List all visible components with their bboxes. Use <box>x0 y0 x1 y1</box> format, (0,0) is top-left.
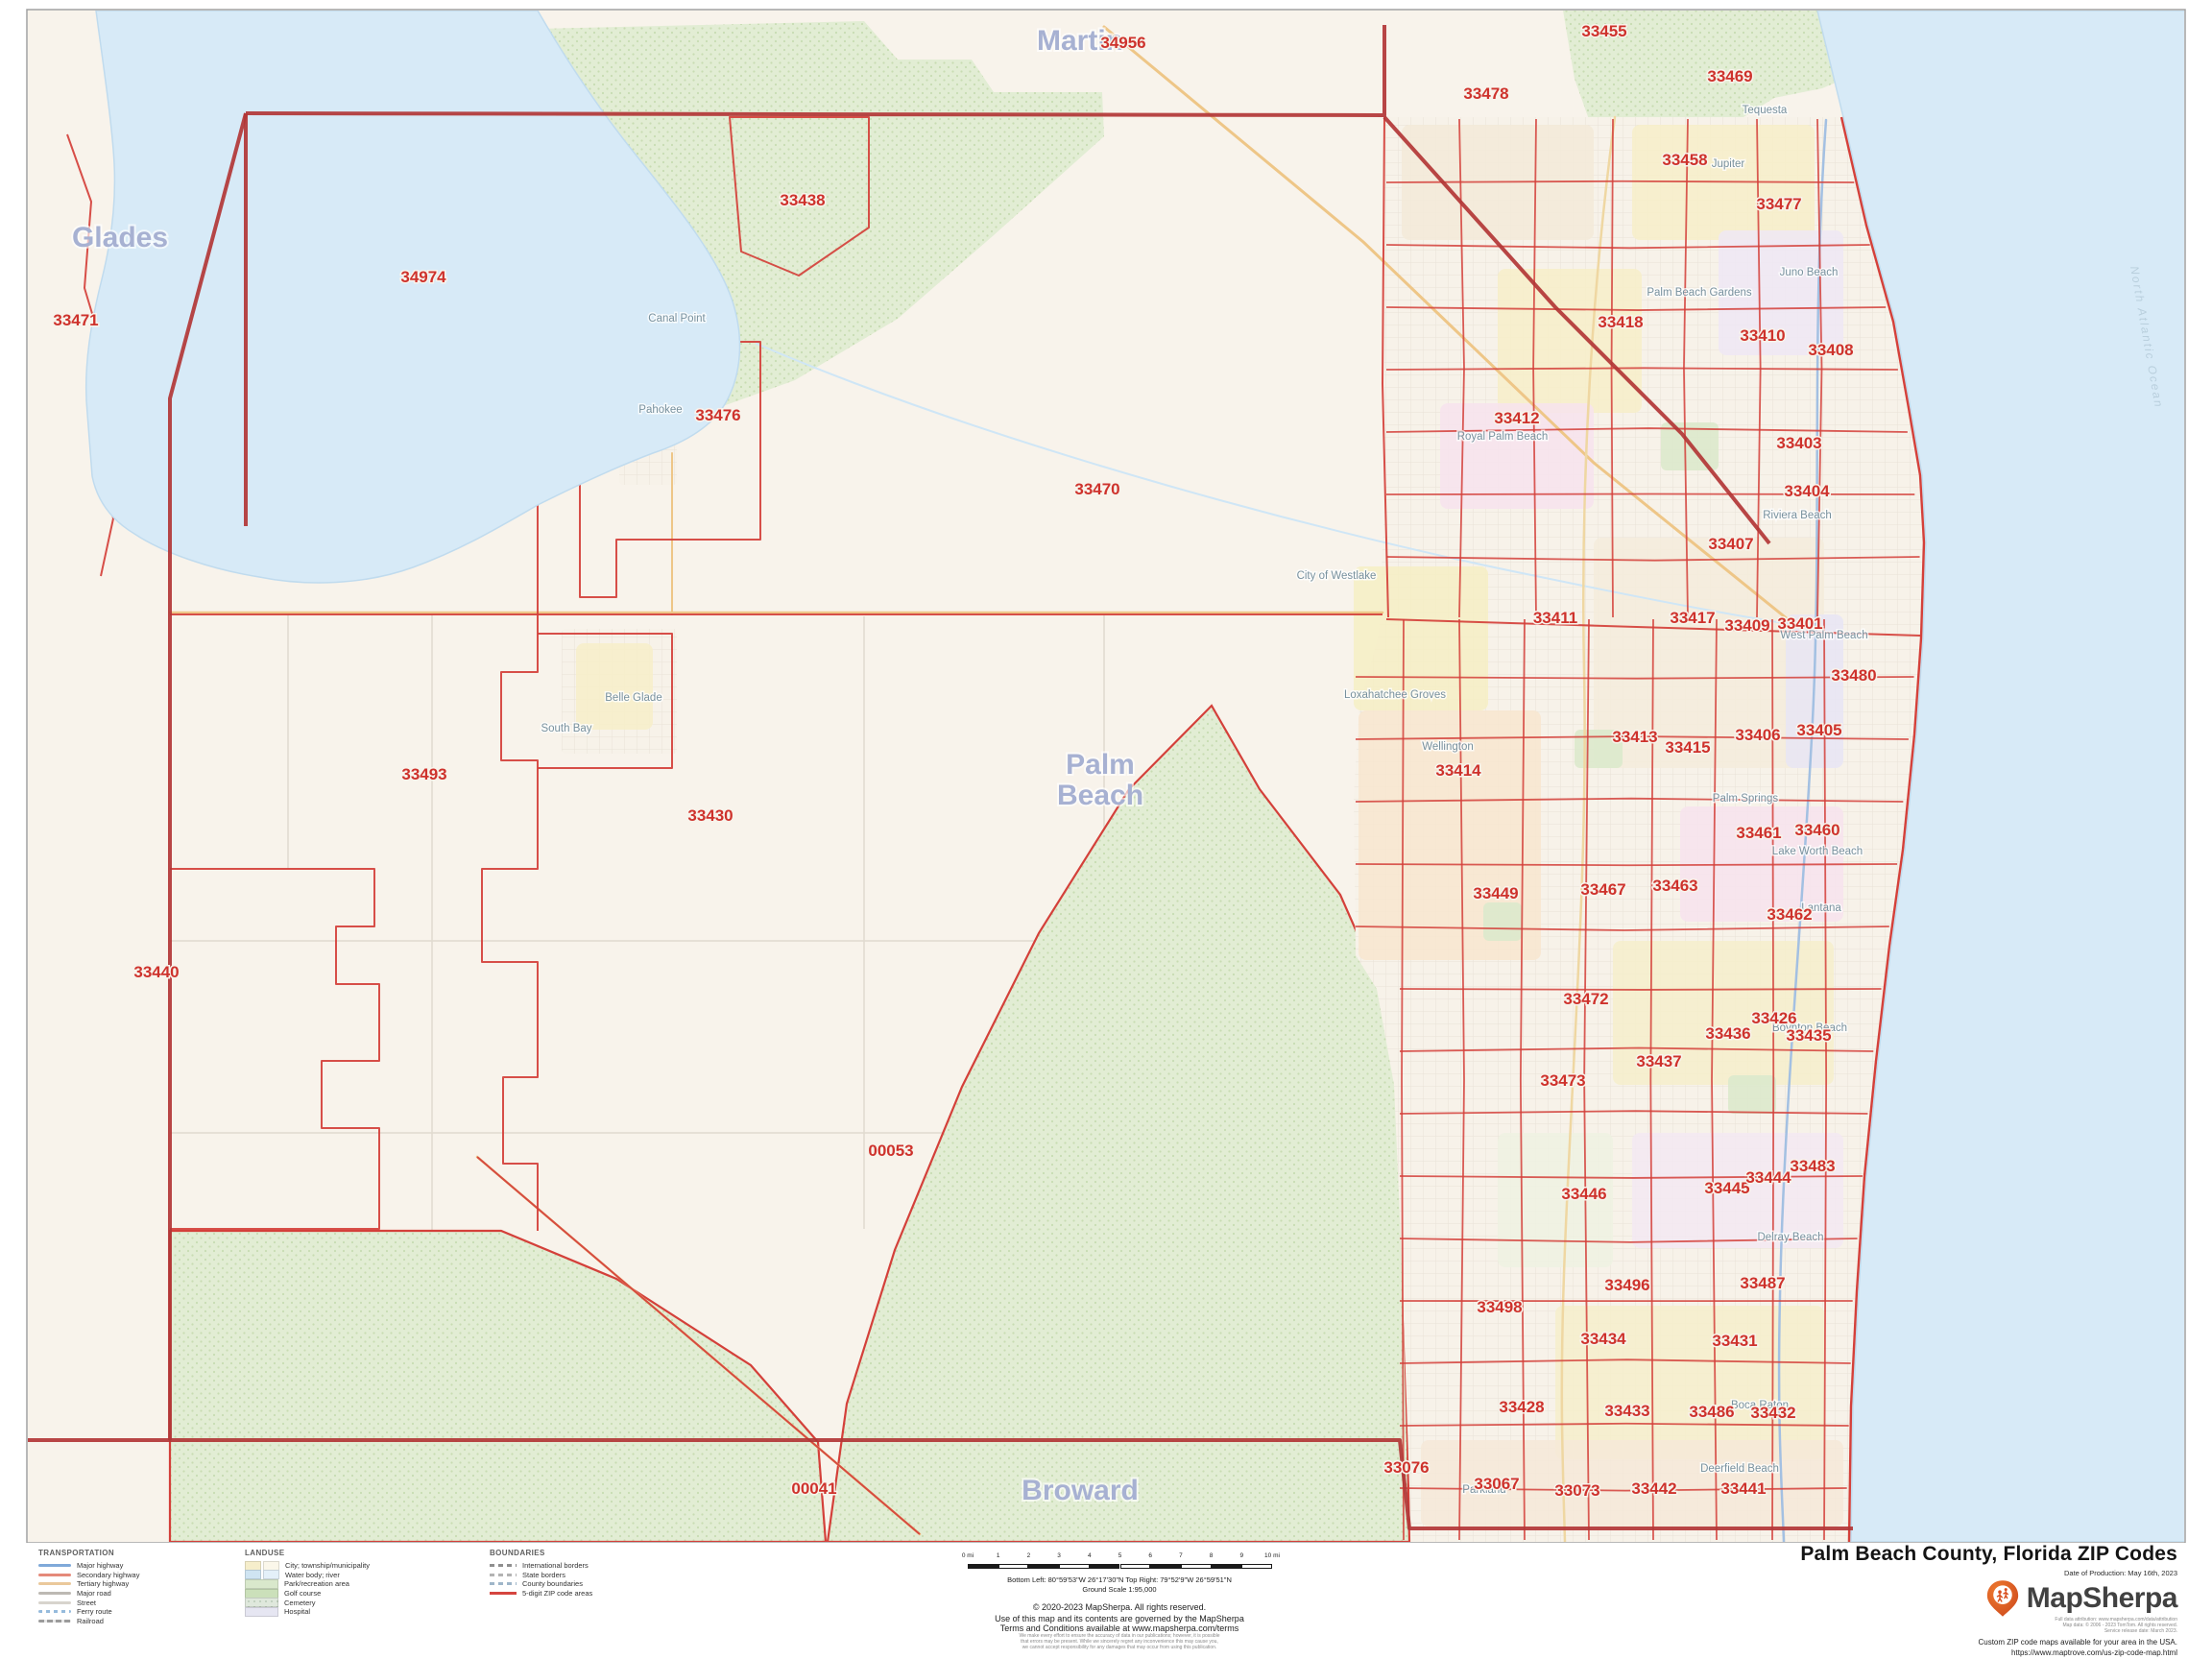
scale-bar-tick: 5 <box>1108 1552 1133 1559</box>
legend-item: Major highway <box>38 1561 139 1571</box>
legend-item-label: Railroad <box>77 1617 104 1625</box>
legend-swatch <box>245 1570 279 1579</box>
zip-label: 33406 <box>1735 726 1780 744</box>
zip-label: 33496 <box>1604 1276 1649 1294</box>
county-label: Beach <box>1057 780 1143 811</box>
legend-section: LANDUSECity; township/municipalityWater … <box>245 1549 370 1617</box>
landuse-patch <box>1555 1306 1824 1459</box>
legend-item-label: State borders <box>522 1571 565 1579</box>
zip-label: 33433 <box>1604 1402 1649 1420</box>
legend-item-label: City; township/municipality <box>285 1561 370 1570</box>
zip-label: 33469 <box>1707 67 1752 85</box>
scale-bar-tick: 10 mi <box>1260 1552 1285 1559</box>
zip-label: 33462 <box>1767 905 1812 924</box>
legend-item-label: Cemetery <box>284 1599 316 1607</box>
legend-swatch <box>38 1592 71 1595</box>
zip-label: 33073 <box>1554 1481 1599 1500</box>
zip-label: 33441 <box>1720 1479 1766 1498</box>
zip-label: 33409 <box>1724 616 1769 635</box>
zip-label: 33437 <box>1636 1052 1681 1070</box>
zip-label: 33493 <box>401 765 446 783</box>
scale-bar-segment <box>1120 1564 1151 1569</box>
legend-swatch <box>490 1582 517 1585</box>
legend-item: Park/recreation area <box>245 1579 370 1589</box>
zip-label: 33483 <box>1790 1157 1835 1175</box>
zip-label: 33403 <box>1776 434 1821 452</box>
legend-item: Secondary highway <box>38 1571 139 1580</box>
scale-bar-segment <box>1241 1564 1272 1569</box>
zip-label: 33415 <box>1665 738 1710 757</box>
legend-item-label: Hospital <box>284 1607 310 1616</box>
legend-item: Hospital <box>245 1607 370 1617</box>
zip-label: 33476 <box>695 406 740 424</box>
legend-item: Water body; river <box>245 1571 370 1580</box>
legend-swatch <box>490 1592 517 1595</box>
zip-label: 33418 <box>1598 313 1643 331</box>
zip-label: 33440 <box>133 963 179 981</box>
zip-boundary <box>1400 989 1882 990</box>
legend-item: Ferry route <box>38 1607 139 1617</box>
footer: TRANSPORTATIONMajor highwaySecondary hig… <box>0 1543 2212 1659</box>
zip-label: 33417 <box>1670 609 1715 627</box>
map-title: Palm Beach County, Florida ZIP Codes <box>1800 1543 2177 1566</box>
legend-item-label: Major road <box>77 1589 111 1598</box>
zip-label: 33431 <box>1712 1332 1757 1350</box>
zip-label: 33432 <box>1750 1404 1795 1422</box>
legend-swatch <box>245 1607 278 1617</box>
scale-bar-tick: 2 <box>1016 1552 1041 1559</box>
legend-swatch <box>245 1561 279 1571</box>
legend-item-label: Major highway <box>77 1561 123 1570</box>
scale-bar-tick: 1 <box>986 1552 1011 1559</box>
zip-label: 33472 <box>1563 990 1608 1008</box>
scale-bar-segment <box>968 1564 998 1569</box>
zip-label: 33460 <box>1794 821 1839 839</box>
scale-bar-segment <box>1059 1564 1090 1569</box>
city-label: Pahokee <box>638 404 682 416</box>
zip-label: 33487 <box>1740 1274 1785 1292</box>
legend-section-title: TRANSPORTATION <box>38 1549 139 1557</box>
legend-item: Cemetery <box>245 1598 370 1607</box>
legend-swatch <box>245 1579 278 1589</box>
zip-label: 33414 <box>1435 761 1481 780</box>
scale-bar-tick: 7 <box>1168 1552 1193 1559</box>
zip-label: 33444 <box>1745 1168 1791 1187</box>
title-block: Palm Beach County, Florida ZIP Codes Dat… <box>1800 1543 2177 1657</box>
map-extent-coordinates: Bottom Left: 80°59'53"W 26°17'30"N Top R… <box>1007 1575 1232 1584</box>
zip-label: 33461 <box>1736 824 1781 842</box>
scale-bar-tick: 8 <box>1199 1552 1224 1559</box>
zip-label: 33477 <box>1756 195 1801 213</box>
city-label: Lake Worth Beach <box>1772 846 1863 857</box>
city-label: Delray Beach <box>1757 1232 1823 1243</box>
legend-item-label: Street <box>77 1599 96 1607</box>
scale-bar-segment <box>1212 1564 1242 1569</box>
legend-swatch <box>490 1574 517 1576</box>
landuse-patch <box>576 643 653 730</box>
zip-label: 33076 <box>1383 1458 1429 1477</box>
zip-label: 33428 <box>1499 1398 1544 1416</box>
zip-label: 33467 <box>1580 880 1625 899</box>
page: { "map": { "colors": { "base": "#f8f3eb"… <box>0 0 2212 1659</box>
zip-label: 33067 <box>1474 1475 1519 1493</box>
zip-code-map: North Atlantic OceanGladesMartinPalmBeac… <box>0 0 2212 1543</box>
legend-section: TRANSPORTATIONMajor highwaySecondary hig… <box>38 1549 139 1625</box>
legend-item: Street <box>38 1598 139 1607</box>
scale-bar-tick: 6 <box>1138 1552 1163 1559</box>
zip-label: 00053 <box>868 1142 913 1160</box>
zip-label: 33430 <box>687 806 733 825</box>
legend-swatch <box>490 1564 517 1567</box>
legend-item: Golf course <box>245 1589 370 1599</box>
zip-label: 33401 <box>1777 614 1822 633</box>
park-patch <box>1728 1075 1776 1114</box>
scale-bar-segment <box>1090 1564 1120 1569</box>
zip-label: 33458 <box>1662 151 1707 169</box>
scale-bar-tick: 3 <box>1046 1552 1071 1559</box>
zip-label: 33413 <box>1612 728 1657 746</box>
zip-label: 33408 <box>1808 341 1853 359</box>
city-label: Loxahatchee Groves <box>1344 689 1446 701</box>
legend-item-label: Golf course <box>284 1589 321 1598</box>
brand-name: MapSherpa <box>2027 1582 2177 1615</box>
legend-swatch <box>38 1574 71 1576</box>
zip-label: 00041 <box>791 1479 836 1498</box>
custom-maps-note: Custom ZIP code maps available for your … <box>1800 1638 2177 1647</box>
legend-section: BOUNDARIESInternational bordersState bor… <box>490 1549 592 1598</box>
legend-item-label: Ferry route <box>77 1607 112 1616</box>
data-attribution-3: Service release date: March 2023. <box>1800 1629 2177 1635</box>
legend-item: 5-digit ZIP code areas <box>490 1589 592 1599</box>
legend-section-title: BOUNDARIES <box>490 1549 592 1557</box>
zip-label: 33405 <box>1796 721 1841 739</box>
zip-label: 33445 <box>1704 1179 1749 1197</box>
legend-item: City; township/municipality <box>245 1561 370 1571</box>
legend-item: Tertiary highway <box>38 1579 139 1589</box>
zip-label: 33436 <box>1705 1024 1750 1043</box>
city-label: Royal Palm Beach <box>1457 431 1549 443</box>
legend-swatch <box>245 1598 278 1607</box>
zip-label: 33435 <box>1786 1026 1831 1045</box>
ground-scale: Ground Scale 1:95,000 <box>1082 1585 1156 1594</box>
legend-item: Major road <box>38 1589 139 1599</box>
zip-label: 33434 <box>1580 1330 1626 1348</box>
scale-bar-segment <box>1181 1564 1212 1569</box>
zip-label: 33463 <box>1652 877 1697 895</box>
maptrove-url: https://www.maptrove.com/us-zip-code-map… <box>1800 1648 2177 1657</box>
legend-item-label: Tertiary highway <box>77 1579 129 1588</box>
zip-label: 33449 <box>1473 884 1518 902</box>
park-patch <box>1483 902 1522 941</box>
county-label: Palm <box>1066 749 1135 781</box>
zip-label: 33410 <box>1740 326 1785 345</box>
city-label: Tequesta <box>1743 105 1788 116</box>
legend-item: State borders <box>490 1571 592 1580</box>
zip-label: 33404 <box>1784 482 1830 500</box>
zip-label: 33412 <box>1494 409 1539 427</box>
legend-item-label: 5-digit ZIP code areas <box>522 1589 592 1598</box>
zip-label: 33455 <box>1581 22 1626 40</box>
scale-bar-tick: 9 <box>1229 1552 1254 1559</box>
legend-swatch <box>38 1601 71 1604</box>
zip-label: 33471 <box>53 311 98 329</box>
legend-item-label: County boundaries <box>522 1579 583 1588</box>
county-label: Broward <box>1022 1475 1139 1506</box>
city-label: Juno Beach <box>1780 267 1839 278</box>
legend-section-title: LANDUSE <box>245 1549 370 1557</box>
city-label: Riviera Beach <box>1763 510 1832 521</box>
zip-label: 33426 <box>1751 1009 1796 1027</box>
city-label: Palm Springs <box>1713 793 1779 805</box>
zip-label: 33470 <box>1074 480 1119 498</box>
county-label: Glades <box>72 222 168 253</box>
scale-bar-segment <box>998 1564 1029 1569</box>
zip-label: 33480 <box>1831 666 1876 685</box>
city-label: Palm Beach Gardens <box>1647 287 1752 299</box>
zip-label: 33438 <box>780 191 825 209</box>
city-label: Belle Glade <box>605 692 661 704</box>
city-label: Deerfield Beach <box>1700 1463 1779 1475</box>
zip-label: 33478 <box>1463 84 1508 103</box>
legend-item-label: International borders <box>522 1561 589 1570</box>
production-date: Date of Production: May 16th, 2023 <box>1800 1569 2177 1577</box>
scale-bar-segment <box>1150 1564 1181 1569</box>
mapsherpa-pin-icon <box>1986 1579 2019 1618</box>
city-label: City of Westlake <box>1297 570 1377 582</box>
zip-label: 33446 <box>1561 1185 1606 1203</box>
copyright-line: © 2020-2023 MapSherpa. All rights reserv… <box>1033 1602 1206 1612</box>
zip-label: 33442 <box>1631 1479 1676 1498</box>
city-label: Wellington <box>1422 741 1474 753</box>
scale-bar-tick: 4 <box>1077 1552 1102 1559</box>
legend-item-label: Park/recreation area <box>284 1579 349 1588</box>
fine-print-3: we cannot accept responsibility for any … <box>1022 1646 1217 1651</box>
legend-swatch <box>38 1582 71 1585</box>
legend-item-label: Secondary highway <box>77 1571 139 1579</box>
legend-item: International borders <box>490 1561 592 1571</box>
legend-swatch <box>38 1610 71 1613</box>
terms-line-2: Terms and Conditions available at www.ma… <box>1000 1623 1239 1633</box>
zip-label: 33498 <box>1477 1298 1522 1316</box>
legend-swatch <box>245 1589 278 1599</box>
city-label: Jupiter <box>1712 158 1745 170</box>
legend-swatch <box>38 1620 71 1623</box>
city-label: Canal Point <box>648 313 706 325</box>
zip-label: 33473 <box>1540 1071 1585 1090</box>
city-label: South Bay <box>541 723 591 734</box>
scale-bar-tick: 0 mi <box>955 1552 980 1559</box>
legend-item: County boundaries <box>490 1579 592 1589</box>
zip-label: 33407 <box>1708 535 1753 553</box>
zip-label: 34956 <box>1100 34 1145 52</box>
legend-item: Railroad <box>38 1617 139 1626</box>
brand-row: MapSherpa <box>1800 1579 2177 1618</box>
scale-bar-segment <box>1028 1564 1059 1569</box>
map-canvas: North Atlantic OceanGladesMartinPalmBeac… <box>0 0 2212 1543</box>
zip-label: 33486 <box>1689 1403 1734 1421</box>
zip-label: 33411 <box>1533 609 1577 627</box>
legend-item-label: Water body; river <box>285 1571 340 1579</box>
scale-bar: 0 mi12345678910 mi <box>968 1552 1273 1574</box>
zip-label: 34974 <box>400 268 446 286</box>
terms-line-1: Use of this map and its contents are gov… <box>995 1614 1244 1623</box>
legend-swatch <box>38 1564 71 1567</box>
